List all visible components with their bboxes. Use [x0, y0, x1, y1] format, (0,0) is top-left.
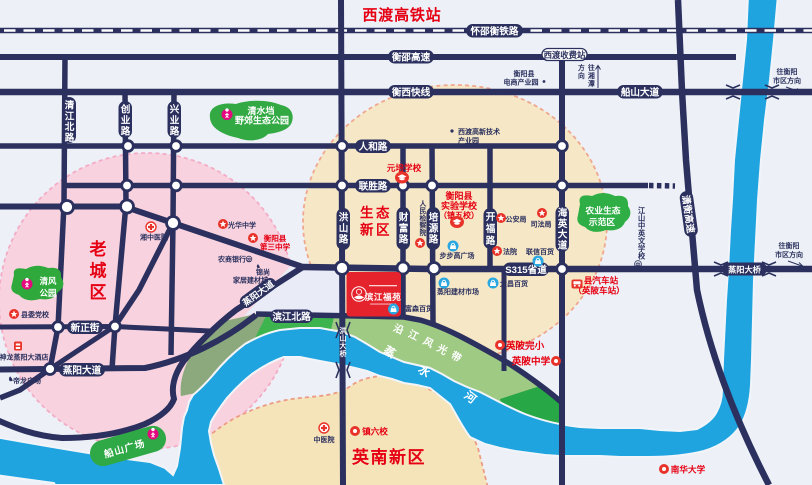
svg-text:产业园: 产业园 — [458, 136, 479, 145]
svg-text:往湘潭: 往湘潭 — [588, 63, 595, 88]
svg-text:西渡收费站: 西渡收费站 — [544, 50, 586, 60]
svg-text:野郊生态公园: 野郊生态公园 — [235, 115, 289, 126]
svg-text:人和路: 人和路 — [359, 141, 388, 153]
svg-text:光华中学: 光华中学 — [227, 221, 256, 230]
svg-text:市区方向: 市区方向 — [775, 250, 803, 259]
svg-text:市区方向: 市区方向 — [773, 76, 801, 85]
svg-text:司法局: 司法局 — [531, 220, 552, 229]
svg-text:中医院: 中医院 — [314, 435, 335, 444]
svg-text:家居建材城: 家居建材城 — [233, 276, 268, 285]
svg-text:衡阳县: 衡阳县 — [264, 233, 287, 243]
svg-text:南华大学: 南华大学 — [671, 464, 706, 475]
svg-text:方向: 方向 — [578, 63, 585, 80]
svg-text:实验学校: 实验学校 — [441, 200, 478, 211]
svg-text:往衡阳: 往衡阳 — [779, 241, 800, 250]
svg-text:财富路: 财富路 — [398, 212, 409, 246]
svg-text:联胜路: 联胜路 — [359, 181, 388, 193]
svg-text:滨江福苑: 滨江福苑 — [365, 291, 401, 302]
svg-text:清水垱: 清水垱 — [247, 105, 274, 116]
svg-text:新区: 新区 — [360, 222, 392, 238]
svg-text:镇六校: 镇六校 — [362, 426, 388, 437]
svg-text:英陂完小: 英陂完小 — [506, 340, 545, 352]
svg-text:富森百货: 富森百货 — [405, 304, 433, 313]
svg-text:怀邵衡铁路: 怀邵衡铁路 — [471, 26, 519, 38]
svg-text:法院: 法院 — [503, 247, 517, 256]
svg-text:创业路: 创业路 — [120, 104, 131, 138]
svg-text:帝龙广场: 帝龙广场 — [13, 376, 41, 385]
svg-text:西渡高新技术: 西渡高新技术 — [458, 127, 500, 136]
svg-text:蒸阳大桥: 蒸阳大桥 — [728, 265, 762, 275]
svg-text:滨江北路: 滨江北路 — [272, 311, 311, 323]
svg-text:衡阳县: 衡阳县 — [445, 190, 472, 201]
svg-text:培源路: 培源路 — [429, 212, 439, 246]
svg-text:海英大道: 海英大道 — [558, 207, 568, 251]
svg-text:往衡阳: 往衡阳 — [777, 67, 798, 76]
svg-text:S315省道: S315省道 — [505, 264, 547, 276]
svg-text:洪山大桥: 洪山大桥 — [340, 326, 347, 358]
svg-text:第三中学: 第三中学 — [260, 242, 291, 252]
svg-text:元培学校: 元培学校 — [387, 162, 422, 173]
svg-text:中: 中 — [635, 262, 640, 269]
svg-text:神龙蒸阳大酒店: 神龙蒸阳大酒店 — [0, 353, 49, 362]
svg-text:农商银行: 农商银行 — [217, 255, 246, 264]
svg-text:人民检察院: 人民检察院 — [420, 199, 427, 237]
svg-text:英陂中学: 英陂中学 — [512, 356, 551, 368]
svg-text:衡阳县: 衡阳县 — [513, 69, 535, 78]
svg-text:农业生态: 农业生态 — [584, 205, 620, 216]
svg-text:衡邵高速: 衡邵高速 — [392, 52, 431, 64]
svg-text:大昌百货: 大昌百货 — [500, 279, 528, 288]
svg-text:县汽车站: 县汽车站 — [584, 275, 619, 286]
svg-text:衡西快线: 衡西快线 — [392, 87, 431, 99]
svg-text:步步高广场: 步步高广场 — [440, 251, 475, 260]
svg-text:电商产业园: 电商产业园 — [504, 78, 539, 87]
svg-text:西渡高铁站: 西渡高铁站 — [362, 6, 441, 24]
svg-text:清风: 清风 — [40, 276, 57, 286]
svg-text:县委党校: 县委党校 — [21, 310, 50, 319]
svg-text:新正街: 新正街 — [71, 322, 100, 334]
svg-text:♞: ♞ — [8, 376, 13, 383]
svg-text:老城区: 老城区 — [89, 239, 107, 302]
svg-text:船山大道: 船山大道 — [621, 87, 660, 99]
svg-text:农: 农 — [246, 256, 252, 263]
svg-text:湘中医院: 湘中医院 — [140, 233, 168, 242]
svg-text:示范区: 示范区 — [588, 216, 616, 227]
svg-text:蒸阳大道: 蒸阳大道 — [63, 365, 102, 377]
svg-text:江山中英文学校: 江山中英文学校 — [637, 206, 646, 261]
svg-text:♞: ♞ — [256, 264, 260, 270]
svg-text:英南新区: 英南新区 — [352, 447, 426, 467]
svg-text:开福路: 开福路 — [485, 212, 496, 247]
svg-text:兴业路: 兴业路 — [170, 104, 180, 138]
svg-text:洪山路: 洪山路 — [339, 212, 349, 246]
svg-text:公园: 公园 — [40, 288, 57, 298]
svg-text:生态: 生态 — [360, 205, 392, 221]
svg-text:清江北路: 清江北路 — [65, 100, 75, 144]
svg-text:公安局: 公安局 — [506, 215, 527, 224]
svg-text:联信百货: 联信百货 — [526, 247, 554, 256]
